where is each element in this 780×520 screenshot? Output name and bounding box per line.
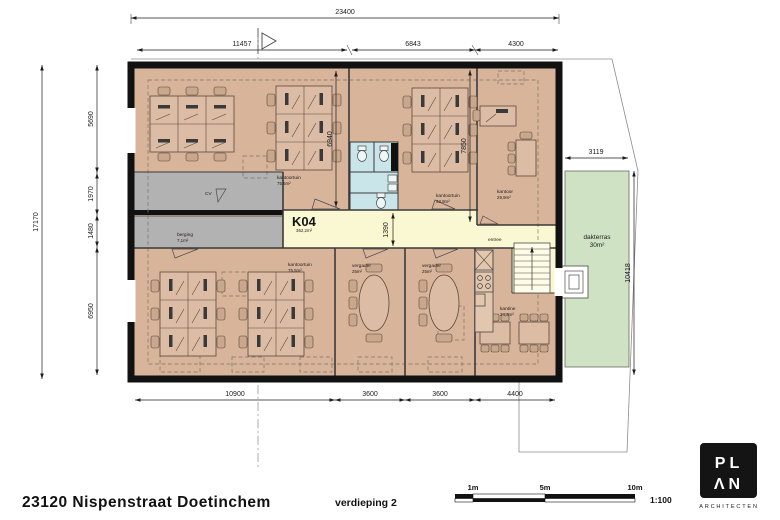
dim-left-seg-2: 1970	[88, 186, 95, 202]
room-area-berging: 7,1m²	[177, 238, 189, 243]
scale-bar: 1m 5m 10m 1:100	[455, 483, 672, 505]
canteen-table	[519, 314, 549, 352]
room-label-corridor-code: K04	[292, 214, 317, 229]
room-area-kantoortuin-nw: 75,5m²	[277, 181, 291, 186]
dim-interior-nw: 6940	[327, 131, 334, 147]
dim-bottom-seg-4: 4400	[507, 391, 523, 398]
floor-plan-drawing: kantoortuin 75,5m² kantoortuin 43,9m² ka…	[0, 0, 780, 520]
desk-cluster	[151, 272, 225, 356]
dim-top-seg-1: 11457	[233, 41, 252, 48]
logo-line-1: PL	[715, 455, 743, 472]
wall-segment	[134, 210, 283, 215]
room-area-kantoortuin-sw: 75,5m²	[288, 268, 302, 273]
floor-label: verdieping 2	[335, 497, 397, 509]
room-area-kantoor: 29,9m²	[497, 195, 511, 200]
dim-bottom-seg-1: 10900	[225, 391, 245, 398]
desk-cluster	[239, 272, 313, 356]
scale-ratio: 1:100	[650, 495, 672, 505]
room-label-entree: entree	[488, 237, 502, 243]
scale-tick-10m: 10m	[627, 483, 642, 492]
dim-interior-n: 7850	[461, 138, 468, 154]
logo-caption: ARCHITECTEN	[699, 504, 759, 510]
dim-left-seg-4: 6950	[88, 303, 95, 319]
dim-top-seg-2: 6843	[405, 41, 421, 48]
room-label-cv: CV	[205, 191, 212, 197]
terrace-door-landing	[560, 266, 588, 298]
room-toilets	[350, 142, 398, 210]
room-area-vergader-1: 25m²	[352, 269, 363, 274]
room-area-corridor: 362,2m²	[296, 228, 313, 233]
room-area-vergader-2: 25m²	[422, 269, 433, 274]
dim-left-seg-1: 5690	[88, 111, 95, 127]
project-title: 23120 Nispenstraat Doetinchem	[22, 494, 271, 511]
stairs	[514, 243, 550, 293]
room-label-dakterras: dakterras	[583, 234, 611, 241]
dim-top-total: 23400	[335, 9, 355, 16]
desk-cluster	[150, 87, 234, 161]
room-area-kantoortuin-n: 43,9m²	[436, 199, 450, 204]
kitchen-counter	[475, 250, 493, 332]
scale-tick-1m: 1m	[468, 483, 479, 492]
dim-bottom-seg-2: 3600	[362, 391, 378, 398]
room-area-dakterras: 30m²	[590, 242, 606, 249]
architect-logo: PL ΛN ARCHITECTEN	[699, 443, 759, 510]
room-area-kantine: 24,3m²	[500, 312, 514, 317]
logo-line-2: ΛN	[714, 476, 744, 493]
desk-cluster	[267, 86, 341, 170]
dim-left-seg-3: 1480	[88, 223, 95, 239]
dim-corridor-width: 1390	[383, 222, 390, 238]
room-berging	[134, 216, 283, 248]
floor-plan-canvas: kantoortuin 75,5m² kantoortuin 43,9m² ka…	[0, 0, 780, 520]
dim-left-total: 17170	[33, 212, 40, 232]
dim-terrace-width: 3119	[588, 149, 603, 156]
dim-bottom-seg-3: 3600	[432, 391, 448, 398]
desk-cluster	[403, 88, 477, 172]
dim-top-seg-3: 4300	[508, 41, 524, 48]
dim-terrace-height: 10418	[625, 263, 632, 283]
scale-tick-5m: 5m	[540, 483, 551, 492]
